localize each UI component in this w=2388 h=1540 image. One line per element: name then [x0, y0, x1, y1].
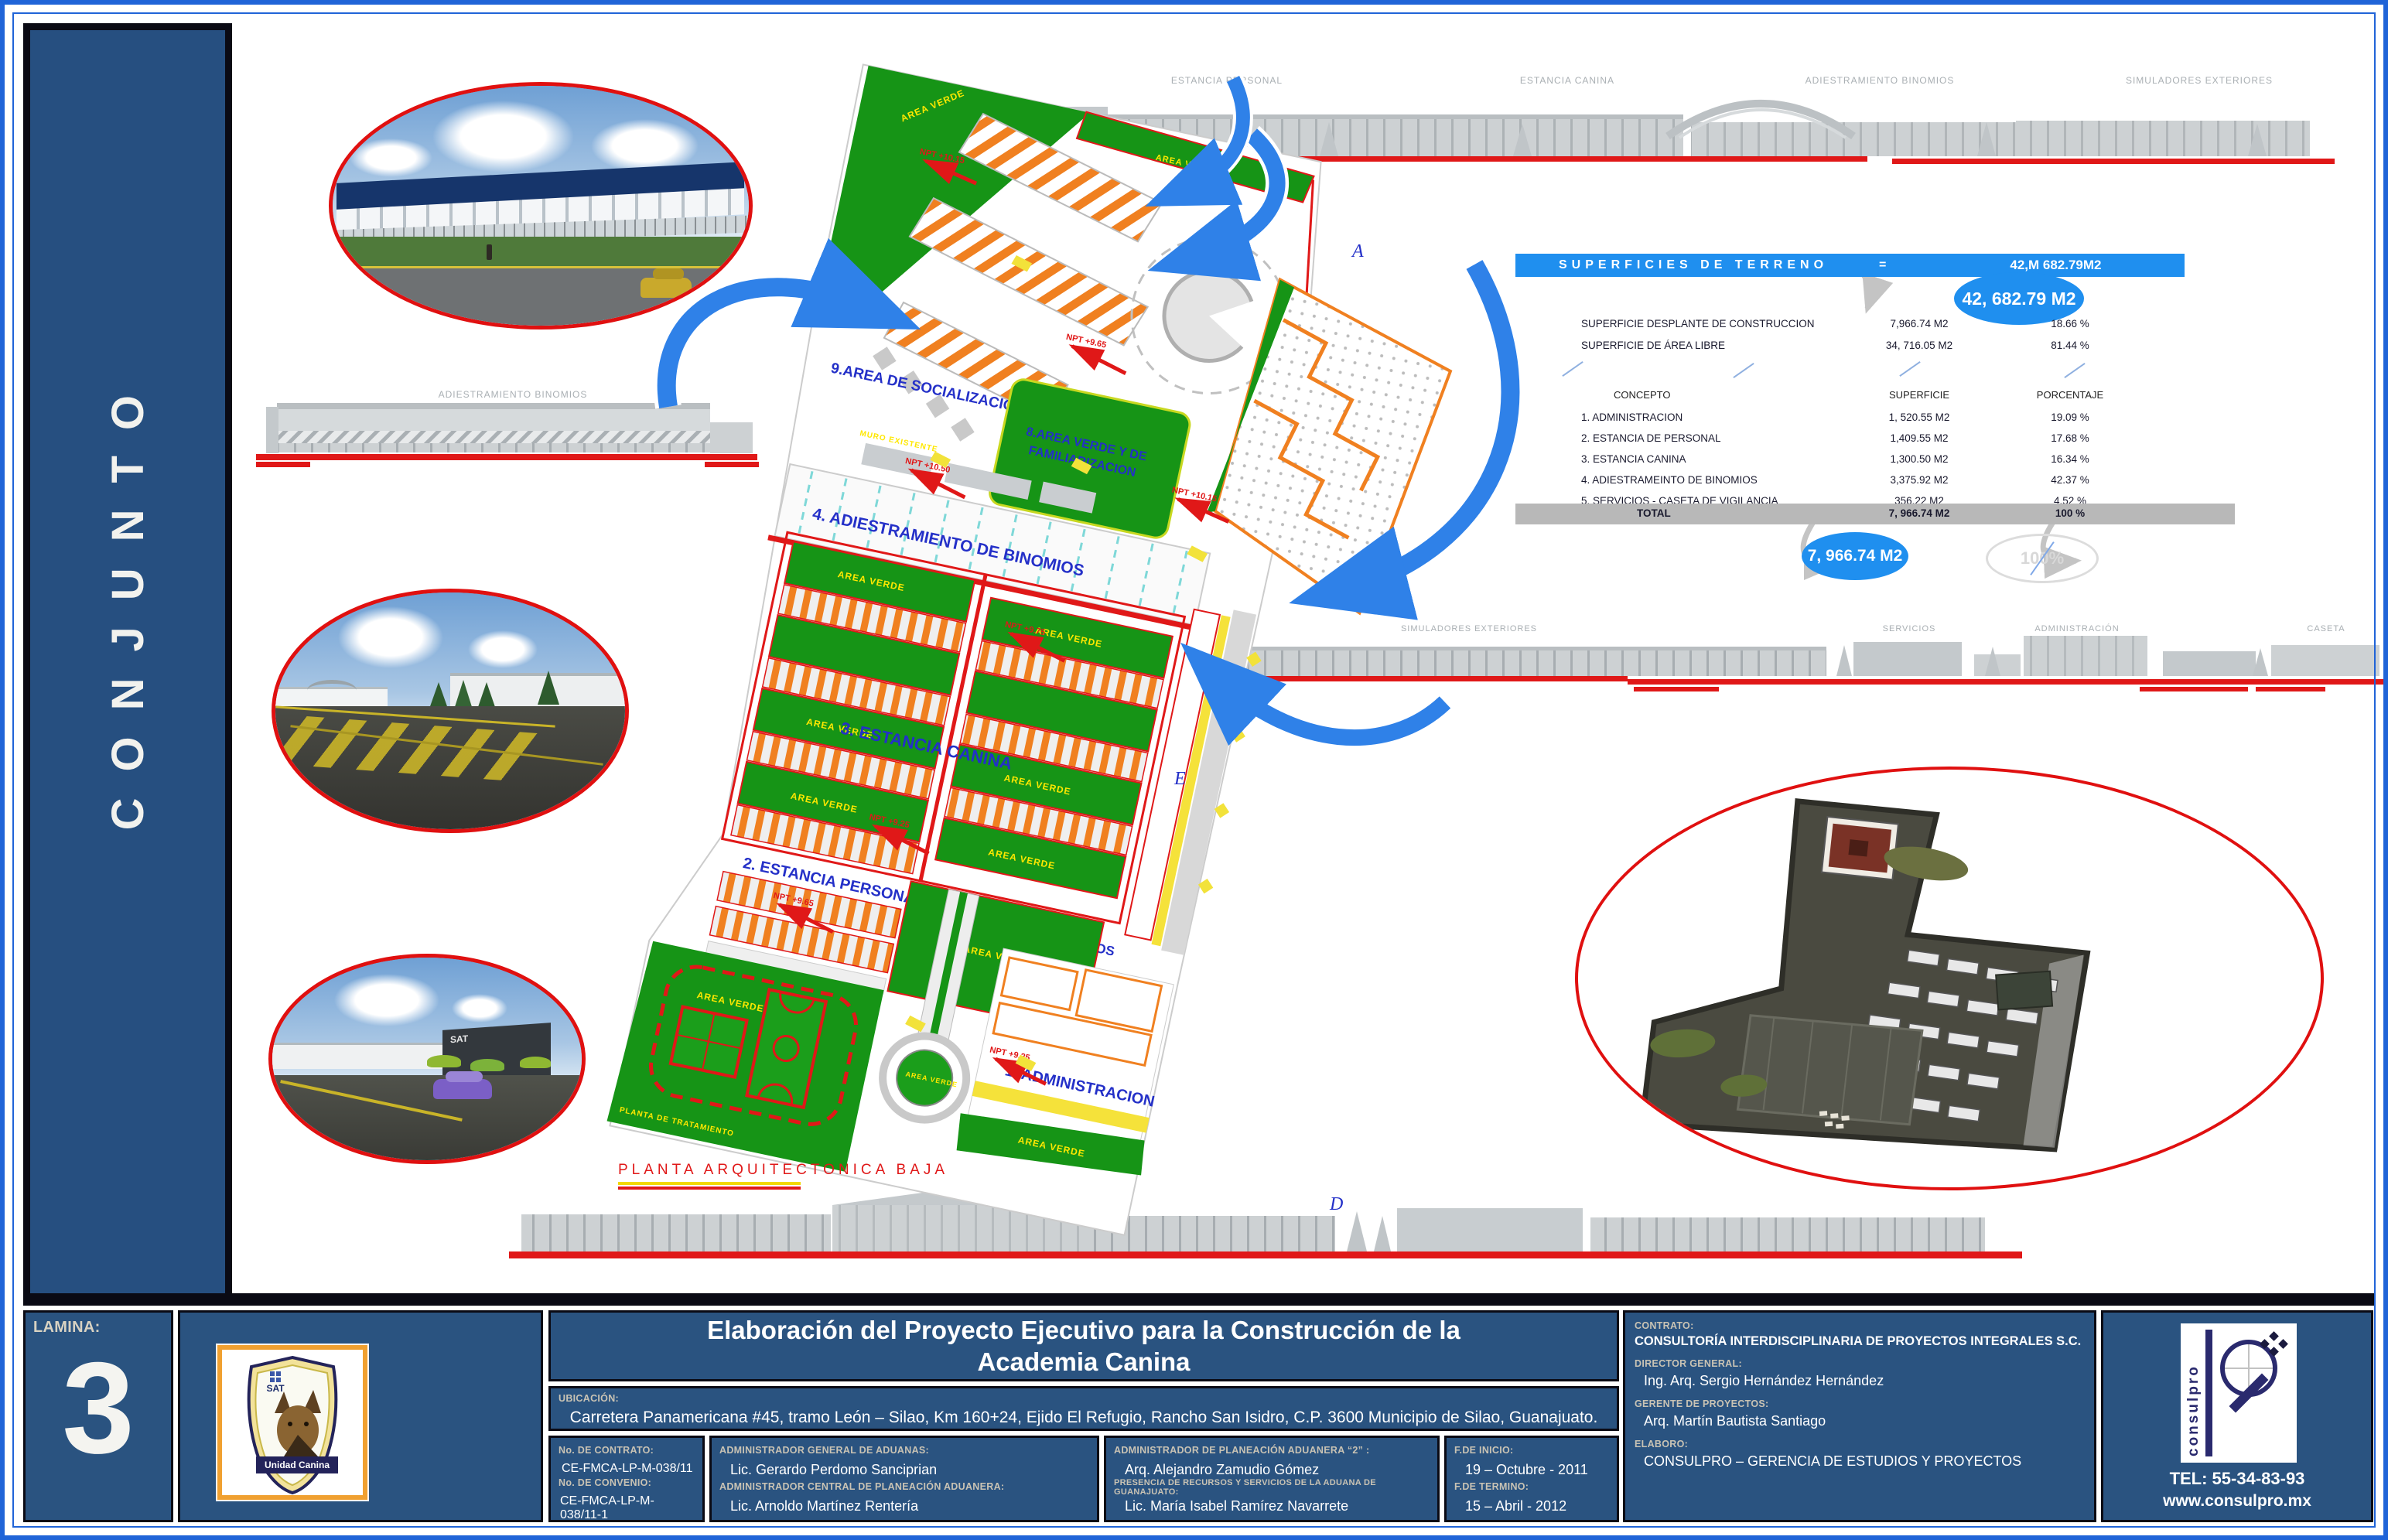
start-date-label: F.DE INICIO: [1454, 1445, 1514, 1456]
render2-arch [307, 680, 357, 701]
cell-superficie: 1,300.50 M2 [1846, 453, 1993, 465]
render3-car-roof [446, 1071, 483, 1082]
consulpro-panel: consulpro TEL: 55-34-83-93 www.consulpro… [2101, 1310, 2373, 1522]
director-label: DIRECTOR GENERAL: [1635, 1358, 1742, 1369]
consultancy-panel: CONTRATO: CONSULTORÍA INTERDISCIPLINARIA… [1623, 1310, 2096, 1522]
total-built-bubble: 7, 966.74 M2 [1802, 532, 1908, 580]
render3-purple-car [433, 1079, 492, 1099]
pine-tree [538, 671, 559, 705]
palm-tree [520, 1057, 551, 1068]
palm-tree [470, 1059, 504, 1071]
agreement-no-label: No. DE CONVENIO: [559, 1477, 651, 1488]
table-row: 3. ESTANCIA CANINA1,300.50 M216.34 % [1513, 453, 2240, 467]
cell-superficie: 1, 520.55 M2 [1846, 411, 1993, 423]
lamina-label: LAMINA: [33, 1319, 163, 1337]
plan-caption-underline-yellow [618, 1182, 801, 1185]
badge-panel: SAT Unidad Canina [178, 1310, 543, 1522]
contract-numbers-panel: No. DE CONTRATO:CE-FMCA-LP-M-038/11 No. … [548, 1436, 705, 1522]
render-perspective-3: SAT [268, 954, 586, 1164]
surfaces-table: SUPERFICIES DE TERRENO = 42,M 682.79M2 4… [1513, 248, 2240, 612]
elevation-top-label-3: ADIESTRAMIENTO BINOMIOS [1806, 75, 1955, 86]
project-title-panel: Elaboración del Proyecto Ejecutivo para … [548, 1310, 1619, 1381]
table-equals: = [1879, 258, 1886, 272]
elevation-mid-label-4: CASETA [2307, 624, 2345, 633]
end-date-value: 15 – Abril - 2012 [1465, 1498, 1609, 1514]
sidebar-title: CONJUNTO [102, 369, 154, 830]
consulpro-web: www.consulpro.mx [2103, 1492, 2371, 1511]
render1-car-roof [653, 268, 684, 279]
end-date-label: F.DE TERMINO: [1454, 1481, 1529, 1492]
total-value: 7, 966.74 M2 [1846, 507, 1993, 519]
render-perspective-1 [329, 82, 753, 330]
render-aerial-view [1575, 767, 2324, 1190]
cell-porcentaje: 42.37 % [2008, 474, 2132, 486]
contract-no-value: CE-FMCA-LP-M-038/11 [562, 1462, 695, 1476]
cell-superficie: 3,375.92 M2 [1846, 474, 1993, 486]
consulpro-logo: consulpro [2181, 1323, 2297, 1463]
sidebar-conjunto: CONJUNTO [23, 23, 232, 1293]
location-panel: UBICACIÓN: Carretera Panamericana #45, t… [548, 1386, 1619, 1431]
cell-concepto: 4. ADIESTRAMEINTO DE BINOMIOS [1581, 474, 1844, 486]
col-header-concepto: CONCEPTO [1614, 389, 1877, 401]
admin-central-value: Lic. Arnoldo Martínez Rentería [730, 1498, 1089, 1514]
cloud [432, 101, 574, 172]
elaborated-value: CONSULPRO – GERENCIA DE ESTUDIOS Y PROYE… [1644, 1453, 2085, 1470]
cloud [350, 138, 433, 177]
admin-general-label: ADMINISTRADOR GENERAL DE ADUANAS: [719, 1445, 929, 1456]
elaborated-label: ELABORO: [1635, 1439, 1688, 1450]
palm-tree [427, 1055, 461, 1067]
cell-porcentaje: 16.34 % [2008, 453, 2132, 465]
elevation-mid-label-3: ADMINISTRACIÓN [2034, 623, 2119, 633]
location-label: UBICACIÓN: [559, 1393, 619, 1404]
row-libre-value: 34, 716.05 M2 [1846, 340, 1993, 351]
total-pct-ghost-bubble: 100% [1986, 534, 2099, 583]
table-title: SUPERFICIES DE TERRENO [1559, 258, 1828, 272]
render1-person [487, 244, 492, 260]
director-value: Ing. Arq. Sergio Hernández Hernández [1644, 1373, 2085, 1389]
section-letter-e: E [1174, 769, 1186, 789]
row-libre-label: SUPERFICIE DE ÁREA LIBRE [1581, 340, 1844, 351]
cell-porcentaje: 17.68 % [2008, 432, 2132, 444]
contract-no-label: No. DE CONTRATO: [559, 1445, 654, 1456]
elevation-top-label-4: SIMULADORES EXTERIORES [2126, 75, 2273, 86]
pine-tree [429, 682, 448, 709]
total-terrain-bubble: 42, 682.79 M2 [1954, 272, 2084, 325]
presence-label: PRESENCIA DE RECURSOS Y SERVICIOS DE LA … [1114, 1478, 1430, 1497]
project-title-line1: Elaboración del Proyecto Ejecutivo para … [707, 1314, 1460, 1346]
lamina-number: 3 [33, 1343, 163, 1473]
badge-svg: SAT Unidad Canina [216, 1344, 369, 1501]
cell-concepto: 3. ESTANCIA CANINA [1581, 453, 1844, 465]
cell-porcentaje: 19.09 % [2008, 411, 2132, 423]
section-letter-d: D [1329, 1194, 1343, 1214]
row-libre-pct: 81.44 % [2008, 340, 2132, 351]
render1-lawn [333, 237, 749, 268]
table-header-bar: SUPERFICIES DE TERRENO = 42,M 682.79M2 [1515, 254, 2185, 277]
cell-superficie: 1,409.55 M2 [1846, 432, 1993, 444]
planning-panel: ADMINISTRADOR DE PLANEACIÓN ADUANERA “2”… [1104, 1436, 1440, 1522]
pine-tree [454, 680, 473, 709]
contract-value: CONSULTORÍA INTERDISCIPLINARIA DE PROYEC… [1635, 1334, 2085, 1349]
aerial-svg [1578, 770, 2315, 1181]
plan-caption: PLANTA ARQUITECTONICA BAJA [618, 1162, 948, 1179]
cell-concepto: 2. ESTANCIA DE PERSONAL [1581, 432, 1844, 444]
admin-planning-value: Arq. Alejandro Zamudio Gómez [1125, 1462, 1430, 1478]
contract-label: CONTRATO: [1635, 1320, 1694, 1331]
pine-tree [478, 682, 495, 707]
cell-concepto: 1. ADMINISTRACION [1581, 411, 1844, 423]
admin-general-value: Lic. Gerardo Perdomo Sanciprian [730, 1462, 1089, 1478]
start-date-value: 19 – Octubre - 2011 [1465, 1462, 1609, 1478]
manager-value: Arq. Martín Bautista Santiago [1644, 1413, 2085, 1429]
location-value: Carretera Panamericana #45, tramo León –… [559, 1409, 1609, 1427]
agreement-no-value: CE-FMCA-LP-M-038/11-1 [560, 1494, 695, 1522]
dates-panel: F.DE INICIO:19 – Octubre - 2011 F.DE TER… [1444, 1436, 1619, 1522]
admin-central-label: ADMINISTRADOR CENTRAL DE PLANEACIÓN ADUA… [719, 1481, 1004, 1492]
badge-name-text: Unidad Canina [265, 1460, 330, 1470]
cloud [334, 974, 439, 1026]
col-header-superficie: SUPERFICIE [1846, 389, 1993, 401]
consulpro-logo-svg: consulpro [2181, 1323, 2297, 1463]
sat-wall-text: SAT [450, 1033, 468, 1046]
footer-divider [23, 1293, 2374, 1306]
table-row: 4. ADIESTRAMEINTO DE BINOMIOS3,375.92 M2… [1513, 474, 2240, 488]
table-header-value: 42,M 682.79M2 [2010, 258, 2101, 273]
elevation-mid-label-2: SERVICIOS [1883, 624, 1936, 633]
manager-label: GERENTE DE PROYECTOS: [1635, 1398, 1768, 1409]
row-desplante-pct: 18.66 % [2008, 318, 2132, 330]
render1-yellow-car [641, 278, 692, 298]
cloud [338, 606, 443, 668]
project-title-line2: Academia Canina [977, 1346, 1190, 1378]
table-row: 2. ESTANCIA DE PERSONAL1,409.55 M217.68 … [1513, 432, 2240, 446]
badge-sat-text: SAT [266, 1383, 285, 1394]
plan-caption-underline-red [618, 1187, 801, 1190]
unidad-canina-badge: SAT Unidad Canina [216, 1344, 369, 1501]
col-header-porcentaje: PORCENTAJE [2008, 389, 2132, 401]
consulpro-brand-text: consulpro [2185, 1364, 2202, 1456]
consulpro-tel: TEL: 55-34-83-93 [2103, 1469, 2371, 1489]
section-letter-a: A [1351, 241, 1364, 261]
table-row: 1. ADMINISTRACION1, 520.55 M219.09 % [1513, 411, 2240, 425]
render-perspective-2 [272, 589, 629, 833]
total-pct: 100 % [2008, 507, 2132, 519]
cloud [468, 630, 538, 668]
cloud [452, 994, 507, 1023]
administrators-panel: ADMINISTRADOR GENERAL DE ADUANAS:Lic. Ge… [709, 1436, 1099, 1522]
presence-value: Lic. María Isabel Ramírez Navarrete [1125, 1498, 1430, 1514]
drawing-sheet: ESTANCIA PERSONAL ESTANCIA CANINA ADIEST… [0, 0, 2388, 1540]
row-desplante-label: SUPERFICIE DESPLANTE DE CONSTRUCCION [1581, 318, 1844, 330]
admin-planning-label: ADMINISTRADOR DE PLANEACIÓN ADUANERA “2”… [1114, 1445, 1369, 1456]
lamina-box: LAMINA: 3 [23, 1310, 173, 1522]
row-desplante-value: 7,966.74 M2 [1846, 318, 1993, 330]
